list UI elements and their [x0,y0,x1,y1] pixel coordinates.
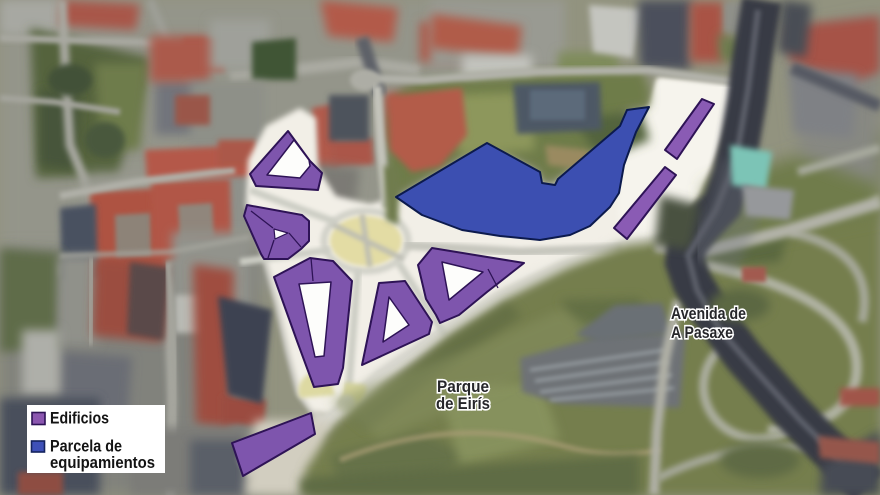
svg-text:Avenida de: Avenida de [671,304,746,323]
svg-text:de Eirís: de Eirís [436,394,490,413]
svg-text:equipamientos: equipamientos [50,454,155,472]
svg-text:A Pasaxe: A Pasaxe [671,323,733,342]
svg-text:Parcela de: Parcela de [50,438,122,456]
svg-text:Edificios: Edificios [50,410,109,428]
